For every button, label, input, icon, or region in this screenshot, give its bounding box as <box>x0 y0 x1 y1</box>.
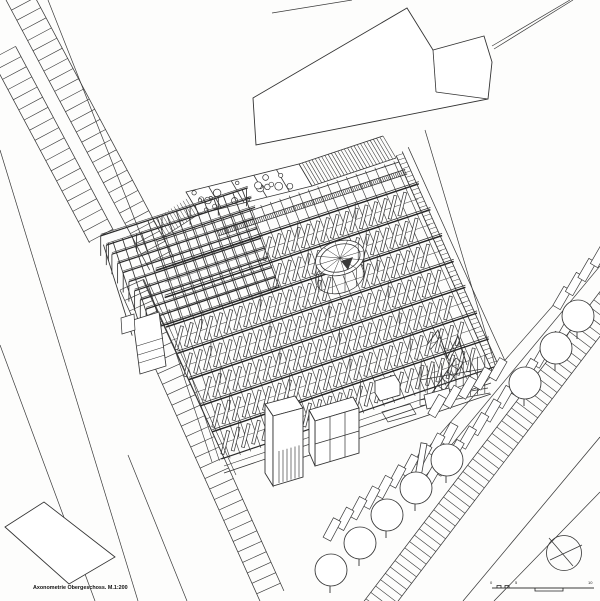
svg-text:10: 10 <box>588 580 593 585</box>
svg-text:Axonometrie Obergeschoss. M.1:: Axonometrie Obergeschoss. M.1:200 <box>33 585 128 591</box>
